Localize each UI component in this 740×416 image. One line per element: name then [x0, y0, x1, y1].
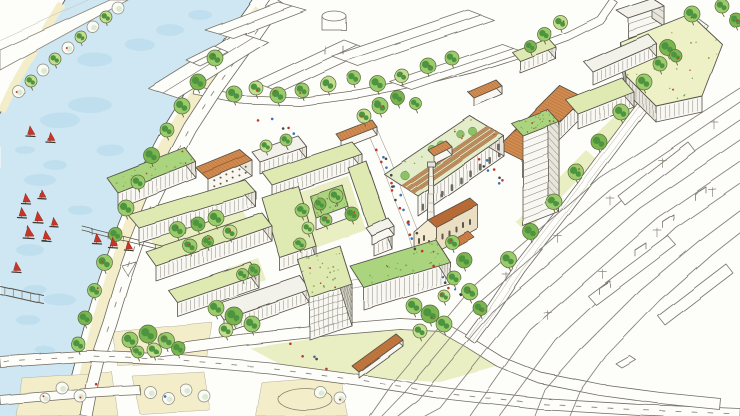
- building-slab-se-large: [350, 240, 450, 310]
- building-shed-orange-small: [468, 80, 502, 106]
- masterplan-sketch: [0, 0, 740, 416]
- masterplan-sketch-canvas: [0, 0, 740, 416]
- scene-root: [0, 0, 740, 416]
- building-bar-orange: [336, 120, 377, 149]
